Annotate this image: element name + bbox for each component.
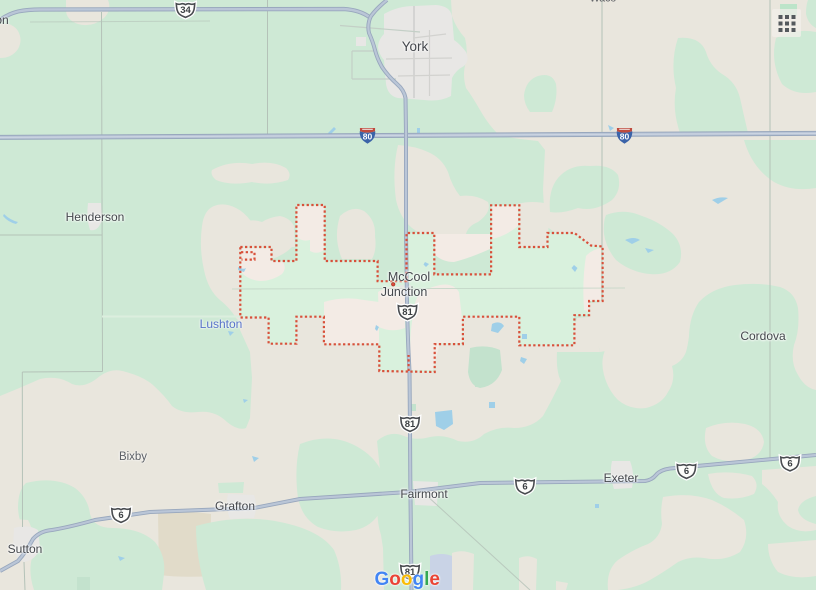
svg-text:McCool: McCool <box>388 270 430 284</box>
svg-text:81: 81 <box>405 419 416 430</box>
svg-text:6: 6 <box>684 466 689 477</box>
svg-text:Henderson: Henderson <box>66 210 125 224</box>
svg-text:Fairmont: Fairmont <box>400 487 448 501</box>
svg-text:Exeter: Exeter <box>604 471 639 485</box>
svg-text:Sutton: Sutton <box>8 542 43 556</box>
svg-text:81: 81 <box>402 307 413 318</box>
svg-text:Google: Google <box>375 569 440 590</box>
svg-text:Bixby: Bixby <box>119 451 147 463</box>
svg-text:on: on <box>0 13 9 27</box>
svg-text:80: 80 <box>363 131 373 141</box>
svg-text:Cordova: Cordova <box>740 329 786 343</box>
svg-text:Lushton: Lushton <box>200 317 243 331</box>
svg-text:34: 34 <box>180 5 191 16</box>
svg-text:6: 6 <box>787 458 792 469</box>
svg-text:6: 6 <box>118 510 123 521</box>
svg-text:York: York <box>402 39 429 54</box>
svg-text:80: 80 <box>620 131 630 141</box>
svg-text:6: 6 <box>522 481 527 492</box>
svg-text:Grafton: Grafton <box>215 499 255 513</box>
svg-text:Junction: Junction <box>381 285 428 299</box>
svg-text:Waco: Waco <box>590 0 617 5</box>
